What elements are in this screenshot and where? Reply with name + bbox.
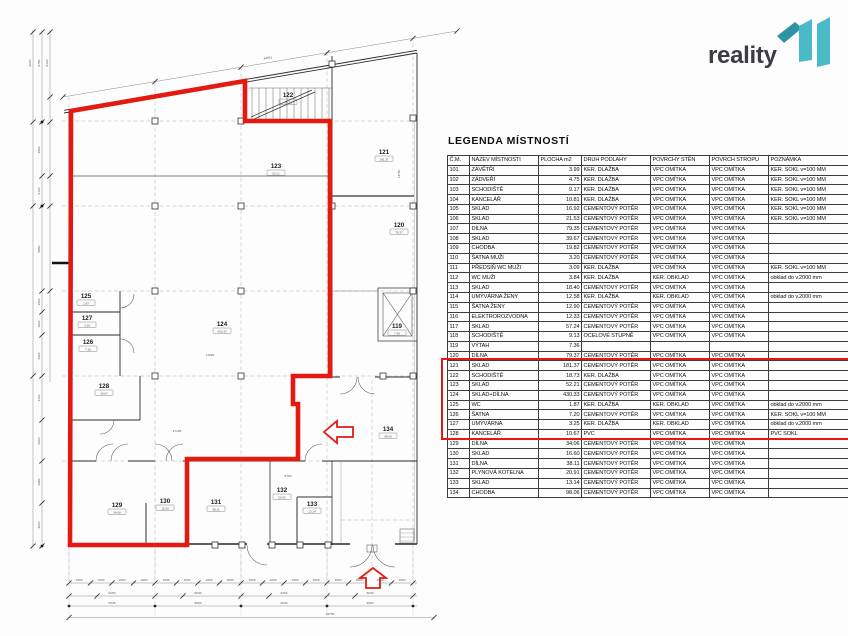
legend-row-118: 118SCHODIŠTĚ9.13OCELOVÉ STUPNĚVPC OMÍTKA… (448, 332, 848, 342)
legend-cell: SKLAD (470, 234, 539, 244)
legend-cell: 9.13 (539, 332, 582, 342)
legend-cell: UMÝVÁRNA (470, 420, 539, 430)
floor-plan: 1197.3612079.37121181.3712218.7312352.21… (0, 0, 460, 636)
room-labels: 1197.3612079.37121181.3712218.7312352.21… (77, 92, 408, 514)
legend-cell: VPC OMÍTKA (710, 244, 769, 254)
legend-cell: SKLAD (470, 204, 539, 214)
legend-cell: 126 (448, 410, 470, 420)
legend-cell (769, 332, 848, 342)
legend-cell: 34.06 (539, 439, 582, 449)
legend-cell: SKLAD (470, 449, 539, 459)
legend-row-116: 116ELEKTROROZVODNA12.33CEMENTOVÝ POTĚRVP… (448, 312, 848, 322)
dim-text: 6000 (28, 59, 32, 66)
legend-row-114: 114UMÝVÁRNA ŽENY12.58KER. DLAŽBAKER. OBK… (448, 292, 848, 302)
legend-cell: CEMENTOVÝ POTĚR (582, 449, 651, 459)
legend-row-132: 132PLYNOVÁ KOTELNA20.91CEMENTOVÝ POTĚRVP… (448, 469, 848, 479)
legend-row-128: 128KANCELÁŘ10.67PVCVPC OMÍTKAVPC OMÍTKAP… (448, 429, 848, 439)
dim-text: 8100 (45, 59, 49, 66)
logo-bar-1 (799, 19, 812, 62)
room-label-124: 124430.33 (213, 321, 231, 333)
legend-cell: CEMENTOVÝ POTĚR (582, 488, 651, 498)
legend-row-115: 115ŠATNA ŽENY12.90CEMENTOVÝ POTĚRVPC OMÍ… (448, 302, 848, 312)
legend-cell: VPC OMÍTKA (651, 263, 710, 273)
legend-cell: CHODBA (470, 488, 539, 498)
legend-cell: CEMENTOVÝ POTĚR (582, 204, 651, 214)
legend-cell: KER. DLAŽBA (582, 292, 651, 302)
legend-cell: VPC OMÍTKA (710, 380, 769, 390)
legend-cell: VPC OMÍTKA (651, 165, 710, 175)
legend-cell: VPC OMÍTKA (651, 322, 710, 332)
legend-cell: 10.67 (539, 429, 582, 439)
column-square (410, 203, 416, 209)
dim-text: 2950 (37, 478, 41, 485)
dim-text: 6250 (109, 591, 116, 595)
dim-text: 44551 (263, 55, 272, 60)
legend-cell: CEMENTOVÝ POTĚR (582, 234, 651, 244)
legend-cell (769, 341, 848, 351)
dim-text: 6030 (195, 591, 202, 595)
walls (64, 50, 417, 552)
room-label-126: 1267.20 (79, 339, 97, 351)
legend-column-header: PLOCHA m2 (539, 156, 582, 166)
legend-cell: VPC OMÍTKA (651, 361, 710, 371)
legend-cell: 115 (448, 302, 470, 312)
legend-cell: CEMENTOVÝ POTĚR (582, 283, 651, 293)
dim-tick (454, 28, 459, 33)
legend-row-102: 102ZÁDVEŘÍ4.75KER. DLAŽBAVPC OMÍTKAVPC O… (448, 175, 848, 185)
legend-cell (769, 469, 848, 479)
legend-cell: ŠATNA (470, 410, 539, 420)
legend-cell (769, 351, 848, 361)
dim-text: 3100 (37, 394, 41, 401)
room-number: 122 (283, 92, 294, 99)
legend-cell: KER. OBKLAD (651, 273, 710, 283)
legend-cell: VPC OMÍTKA (710, 165, 769, 175)
legend-cell: ŠATNA ŽENY (470, 302, 539, 312)
column-square (239, 542, 245, 548)
ramp-hatch (400, 533, 414, 541)
legend-cell: PLYNOVÁ KOTELNA (470, 469, 539, 479)
walls-small-rooms (69, 291, 120, 376)
legend-cell: 125 (448, 400, 470, 410)
legend-cell: 3.09 (539, 263, 582, 273)
legend-cell: CEMENTOVÝ POTĚR (582, 469, 651, 479)
room-tag: 7.36 (394, 331, 400, 335)
legend-column-header: DRUH PODLAHY (582, 156, 651, 166)
room-number: 120 (394, 222, 405, 229)
dim-text: 3000 (37, 521, 41, 528)
legend-cell: 12.58 (539, 292, 582, 302)
dim-text: 1600 (227, 578, 234, 582)
legend-row-134: 134CHODBA98.06CEMENTOVÝ POTĚRVPC OMÍTKAV… (448, 488, 848, 498)
room-label-129: 12934.06 (108, 502, 126, 514)
legend-cell: KER. DLAŽBA (582, 420, 651, 430)
legend-header-row: Č.M.NÁZEV MÍSTNOSTIPLOCHA m2DRUH PODLAHY… (448, 156, 848, 166)
legend-cell: 113 (448, 283, 470, 293)
dim-text: 6250 (281, 591, 288, 595)
legend-cell: CEMENTOVÝ POTĚR (582, 302, 651, 312)
legend-cell: 114 (448, 292, 470, 302)
legend-cell (769, 234, 848, 244)
dim-text: 6750 (37, 59, 41, 66)
door-129-right (111, 444, 128, 461)
dim-text: 5750 (285, 474, 292, 478)
legend-cell (769, 449, 848, 459)
dim-text: 3800 (37, 146, 41, 153)
room-number: 133 (307, 501, 318, 508)
legend-cell: KER. DLAŽBA (582, 175, 651, 185)
door-134-right (358, 377, 375, 394)
legend-cell: VPC OMÍTKA (710, 322, 769, 332)
dim-line (63, 31, 457, 97)
legend-cell: KER. SOKL v=100 MM (769, 175, 848, 185)
legend-cell: PVC SOKL (769, 429, 848, 439)
legend-cell: KER. DLAŽBA (582, 165, 651, 175)
legend-row-122: 122SCHODIŠTĚ18.73KER. DLAŽBAVPC OMÍTKAVP… (448, 371, 848, 381)
legend-cell: 116 (448, 312, 470, 322)
legend-cell (710, 341, 769, 351)
legend-cell: 109 (448, 244, 470, 254)
legend-cell: 101 (448, 165, 470, 175)
column-square (325, 542, 331, 548)
legend-cell (769, 390, 848, 400)
legend-cell: obklad do v.2000 mm (769, 292, 848, 302)
room-tag: 20.91 (278, 495, 286, 499)
legend-cell: obklad do v.2000 mm (769, 420, 848, 430)
dim-text: 9600 (195, 601, 202, 605)
legend-cell: CEMENTOVÝ POTĚR (582, 361, 651, 371)
legend-cell: CEMENTOVÝ POTĚR (582, 478, 651, 488)
legend-cell: VPC OMÍTKA (651, 283, 710, 293)
legend-cell: 104 (448, 195, 470, 205)
legend-cell: VPC OMÍTKA (710, 429, 769, 439)
blueprint-page: 1197.3612079.37121181.3712218.7312352.21… (0, 0, 848, 636)
legend-row-129: 129DÍLNA34.06CEMENTOVÝ POTĚRVPC OMÍTKAVP… (448, 439, 848, 449)
door-130-left (155, 444, 172, 461)
legend-cell: VPC OMÍTKA (651, 488, 710, 498)
legend-cell: 117 (448, 322, 470, 332)
legend-cell: KER. OBKLAD (651, 420, 710, 430)
legend-cell: 107 (448, 224, 470, 234)
room-tag: 1.87 (83, 301, 89, 305)
legend-cell: CEMENTOVÝ POTĚR (582, 351, 651, 361)
room-tag: 34.06 (113, 510, 121, 514)
legend-cell: 57.24 (539, 322, 582, 332)
dim-dot (41, 545, 44, 548)
legend-column-header: POVRCHY STĚN (651, 156, 710, 166)
dim-text: 1500 (163, 578, 170, 582)
column-square (410, 373, 416, 379)
dim-text: 17195 (173, 429, 182, 433)
legend-column-header: POVRCH STROPU (710, 156, 769, 166)
door-exit-south (247, 545, 267, 565)
legend-cell (769, 253, 848, 263)
legend-cell: 12.90 (539, 302, 582, 312)
room-label-131: 13138.11 (207, 499, 225, 511)
legend-cell: SCHODIŠTĚ (470, 371, 539, 381)
legend-cell: KER. DLAŽBA (582, 400, 651, 410)
legend-cell: 12.33 (539, 312, 582, 322)
door-128 (100, 420, 114, 434)
column-square (152, 118, 158, 124)
dim-text: 1600 (399, 578, 406, 582)
legend-cell: KER. SOKL v=100 MM (769, 410, 848, 420)
room-tag: 3.25 (84, 323, 90, 327)
legend-cell: VPC OMÍTKA (710, 283, 769, 293)
legend-cell: 98.06 (539, 488, 582, 498)
legend-cell: CEMENTOVÝ POTĚR (582, 410, 651, 420)
legend-cell: CEMENTOVÝ POTĚR (582, 322, 651, 332)
legend-row-123: 123SKLAD52.21CEMENTOVÝ POTĚRVPC OMÍTKAVP… (448, 380, 848, 390)
legend-cell: PVC (582, 429, 651, 439)
dim-text: 1500 (119, 578, 126, 582)
legend-cell: 7.20 (539, 410, 582, 420)
legend-row-107: 107DÍLNA79.35CEMENTOVÝ POTĚRVPC OMÍTKAVP… (448, 224, 848, 234)
legend-cell: 1.87 (539, 400, 582, 410)
legend-cell: 52.21 (539, 380, 582, 390)
room-tag: 38.11 (212, 507, 220, 511)
legend-cell: SKLAD (470, 380, 539, 390)
column-square (329, 61, 335, 67)
legend-cell: 102 (448, 175, 470, 185)
legend-cell: 128 (448, 429, 470, 439)
legend-cell: VPC OMÍTKA (710, 234, 769, 244)
room-label-130: 13016.60 (156, 498, 174, 510)
legend-column-header: NÁZEV MÍSTNOSTI (470, 156, 539, 166)
room-label-132: 13220.91 (273, 487, 291, 499)
legend-cell: 39.67 (539, 234, 582, 244)
legend-cell (769, 312, 848, 322)
column-square (152, 288, 158, 294)
legend-cell: 181.37 (539, 361, 582, 371)
legend-cell: VPC OMÍTKA (710, 439, 769, 449)
legend-cell: VPC OMÍTKA (710, 390, 769, 400)
column-square (238, 203, 244, 209)
logo-text: reality (708, 44, 777, 68)
legend-cell: KER. DLAŽBA (582, 195, 651, 205)
legend-cell: VPC OMÍTKA (710, 361, 769, 371)
legend-cell (769, 244, 848, 254)
dim-text: 6030 (367, 591, 374, 595)
column-square (238, 373, 244, 379)
dim-text: 1600 (184, 578, 191, 582)
room-number: 119 (392, 323, 403, 330)
legend-cell: VPC OMÍTKA (651, 429, 710, 439)
legend-cell: VPC OMÍTKA (651, 175, 710, 185)
legend-cell: KER. DLAŽBA (582, 263, 651, 273)
legend-cell (769, 361, 848, 371)
legend-row-106: 106SKLAD21.53CEMENTOVÝ POTĚRVPC OMÍTKAVP… (448, 214, 848, 224)
room-tag: 13.14 (308, 509, 316, 513)
legend-cell: 430.33 (539, 390, 582, 400)
room-tag: 16.60 (161, 506, 169, 510)
legend-cell: CEMENTOVÝ POTĚR (582, 390, 651, 400)
legend-cell: 3.25 (539, 420, 582, 430)
room-label-120: 12079.37 (390, 222, 408, 234)
column-square (212, 542, 218, 548)
legend-cell: 130 (448, 449, 470, 459)
legend-cell: VPC OMÍTKA (710, 332, 769, 342)
room-tag: 430.33 (217, 329, 227, 333)
legend-cell: VPC OMÍTKA (651, 449, 710, 459)
legend-cell: CEMENTOVÝ POTĚR (582, 459, 651, 469)
dim-text: 11925 (206, 353, 215, 357)
legend-cell: VPC OMÍTKA (710, 469, 769, 479)
legend-row-108: 108SKLAD39.67CEMENTOVÝ POTĚRVPC OMÍTKAVP… (448, 234, 848, 244)
door-126 (120, 339, 134, 353)
room-tag: 98.06 (384, 434, 392, 438)
legend-cell: SKLAD (470, 214, 539, 224)
dim-dot (41, 205, 44, 208)
legend-cell (769, 380, 848, 390)
legend-cell (582, 341, 651, 351)
legend-cell: 3.84 (539, 273, 582, 283)
legend-cell: 16.92 (539, 204, 582, 214)
legend-cell: VPC OMÍTKA (710, 302, 769, 312)
legend-row-109: 109CHODBA19.82CEMENTOVÝ POTĚRVPC OMÍTKAV… (448, 244, 848, 254)
legend-cell: VPC OMÍTKA (651, 312, 710, 322)
legend-cell: VPC OMÍTKA (651, 185, 710, 195)
legend-cell: VPC OMÍTKA (710, 459, 769, 469)
legend-cell: 112 (448, 273, 470, 283)
dim-text: 1600 (141, 578, 148, 582)
legend-cell: VPC OMÍTKA (710, 410, 769, 420)
legend-table: Č.M.NÁZEV MÍSTNOSTIPLOCHA m2DRUH PODLAHY… (447, 155, 848, 498)
room-number: 124 (217, 321, 228, 328)
legend-row-105: 105SKLAD16.92CEMENTOVÝ POTĚRVPC OMÍTKAVP… (448, 204, 848, 214)
legend-cell: 124 (448, 390, 470, 400)
legend-cell: VÝTAH (470, 341, 539, 351)
room-number: 128 (99, 383, 110, 390)
dim-text: 1500 (249, 578, 256, 582)
dim-text: 1500 (76, 578, 83, 582)
legend-panel: LEGENDA MÍSTNOSTÍ Č.M.NÁZEV MÍSTNOSTIPLO… (447, 135, 842, 498)
legend-cell: SCHODIŠTĚ (470, 332, 539, 342)
legend-cell: VPC OMÍTKA (710, 214, 769, 224)
legend-cell: VPC OMÍTKA (710, 351, 769, 361)
room-number: 131 (211, 499, 222, 506)
legend-cell: 3.99 (539, 165, 582, 175)
legend-cell: KER. OBKLAD (651, 400, 710, 410)
legend-cell: 111 (448, 263, 470, 273)
room-number: 134 (383, 426, 394, 433)
room-number: 126 (83, 339, 94, 346)
legend-cell: UMÝVÁRNA ŽENY (470, 292, 539, 302)
legend-column-header: POZNÁMKA (769, 156, 848, 166)
legend-cell: 127 (448, 420, 470, 430)
legend-cell: 21.53 (539, 214, 582, 224)
logo-bar-2 (817, 17, 830, 67)
column-square (297, 542, 303, 548)
legend-cell (769, 488, 848, 498)
column-square (269, 542, 275, 548)
legend-cell: 13.14 (539, 478, 582, 488)
legend-row-121: 121SKLAD181.37CEMENTOVÝ POTĚRVPC OMÍTKAV… (448, 361, 848, 371)
legend-cell: KER. SOKL v=100 MM (769, 214, 848, 224)
legend-cell: VPC OMÍTKA (710, 195, 769, 205)
legend-cell: 123 (448, 380, 470, 390)
room-tag: 181.37 (379, 157, 389, 161)
door-entrance-left (350, 545, 372, 567)
legend-row-119: 119VÝTAH7.36 (448, 341, 848, 351)
legend-cell: WC (470, 400, 539, 410)
legend-cell: VPC OMÍTKA (651, 410, 710, 420)
legend-cell: KER. SOKL v=100 MM (769, 165, 848, 175)
dim-text: 1600 (98, 578, 105, 582)
legend-cell: WC MUŽI (470, 273, 539, 283)
dim-dot (41, 121, 44, 124)
legend-cell (769, 322, 848, 332)
dim-text: 13750 (397, 169, 401, 178)
legend-row-111: 111PŘEDSÍŇ WC MUŽI3.09KER. DLAŽBAVPC OMÍ… (448, 263, 848, 273)
legend-cell: 3.20 (539, 253, 582, 263)
column-square (410, 288, 416, 294)
legend-cell: DÍLNA (470, 351, 539, 361)
legend-cell: SCHODIŠTĚ (470, 185, 539, 195)
legend-cell: CEMENTOVÝ POTĚR (582, 312, 651, 322)
legend-cell: VPC OMÍTKA (710, 400, 769, 410)
legend-row-124: 124SKLAD+DÍLNA430.33CEMENTOVÝ POTĚRVPC O… (448, 390, 848, 400)
legend-cell: DÍLNA (470, 459, 539, 469)
room-label-134: 13498.06 (379, 426, 397, 438)
dim-text: 1600 (356, 578, 363, 582)
dim-text: 6545 (109, 601, 116, 605)
legend-cell: 16.60 (539, 449, 582, 459)
legend-cell: KER. SOKL v=100 MM (769, 185, 848, 195)
legend-cell (769, 478, 848, 488)
legend-cell: CEMENTOVÝ POTĚR (582, 439, 651, 449)
dimension-labels: 4455160006750810038002100595015001600290… (28, 55, 406, 616)
dim-text: 9630 (281, 601, 288, 605)
legend-row-117: 117SKLAD57.24CEMENTOVÝ POTĚRVPC OMÍTKAVP… (448, 322, 848, 332)
legend-cell: 7.36 (539, 341, 582, 351)
room-tag: 18.73 (284, 100, 292, 104)
legend-cell (769, 302, 848, 312)
legend-cell (769, 224, 848, 234)
legend-cell: VPC OMÍTKA (710, 185, 769, 195)
legend-cell: 121 (448, 361, 470, 371)
legend-cell: DÍLNA (470, 224, 539, 234)
legend-cell: KER. SOKL v=100 MM (769, 263, 848, 273)
room-label-121: 121181.37 (375, 149, 393, 161)
dim-text: 9600 (367, 601, 374, 605)
legend-cell: VPC OMÍTKA (651, 469, 710, 479)
legend-cell: KER. DLAŽBA (582, 185, 651, 195)
legend-cell: ZÁDVEŘÍ (470, 175, 539, 185)
legend-cell: SKLAD (470, 322, 539, 332)
legend-cell: 10.81 (539, 195, 582, 205)
legend-cell: 105 (448, 204, 470, 214)
legend-cell: 9.17 (539, 185, 582, 195)
legend-row-103: 103SCHODIŠTĚ9.17KER. DLAŽBAVPC OMÍTKAVPC… (448, 185, 848, 195)
legend-cell: VPC OMÍTKA (710, 371, 769, 381)
legend-cell: 79.37 (539, 351, 582, 361)
logo: reality (700, 14, 840, 76)
legend-cell: VPC OMÍTKA (651, 214, 710, 224)
legend-cell (769, 439, 848, 449)
legend-cell: SKLAD (470, 283, 539, 293)
legend-cell: VPC OMÍTKA (651, 224, 710, 234)
legend-cell: 4.75 (539, 175, 582, 185)
dim-text: 5950 (37, 245, 41, 252)
legend-cell: VPC OMÍTKA (710, 273, 769, 283)
legend-row-110: 110ŠATNA MUŽI3.20CEMENTOVÝ POTĚRVPC OMÍT… (448, 253, 848, 263)
legend-cell (769, 283, 848, 293)
legend-cell: 110 (448, 253, 470, 263)
legend-row-112: 112WC MUŽI3.84KER. DLAŽBAKER. OBKLADVPC … (448, 273, 848, 283)
dim-text: 2900 (37, 352, 41, 359)
legend-cell: CHODBA (470, 244, 539, 254)
